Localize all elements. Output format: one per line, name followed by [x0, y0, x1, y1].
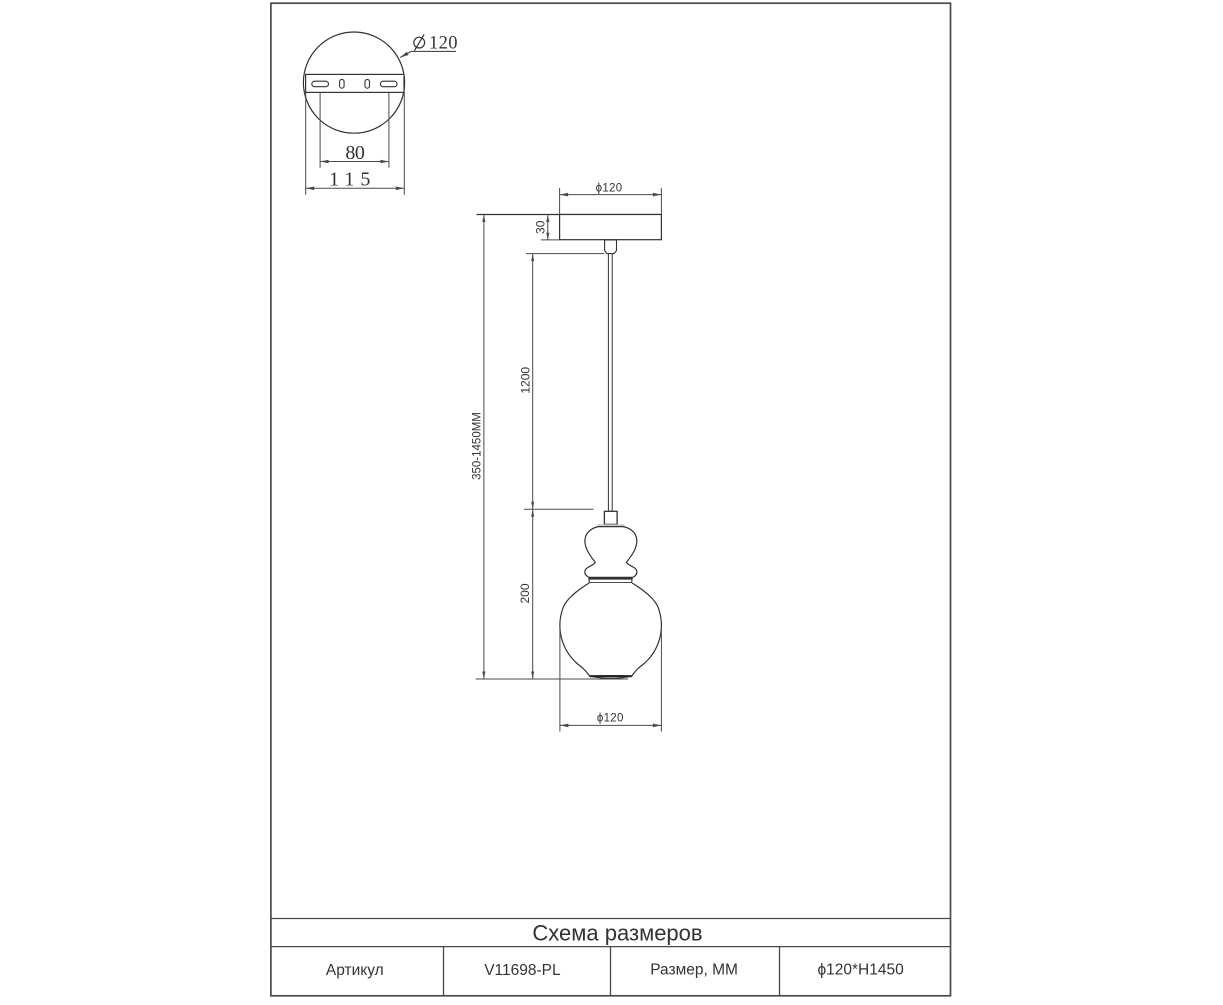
- svg-text:Схема размеров: Схема размеров: [532, 920, 702, 945]
- svg-text:Артикул: Артикул: [326, 962, 384, 979]
- svg-text:ϕ120: ϕ120: [596, 182, 623, 194]
- svg-text:Размер, ММ: Размер, ММ: [650, 961, 738, 978]
- svg-text:120: 120: [429, 33, 458, 53]
- svg-text:1200: 1200: [519, 367, 533, 394]
- svg-text:80: 80: [345, 142, 365, 164]
- svg-text:200: 200: [518, 583, 532, 603]
- svg-text:ϕ120: ϕ120: [597, 712, 624, 724]
- svg-text:ϕ120*H1450: ϕ120*H1450: [817, 962, 904, 979]
- svg-text:115: 115: [329, 168, 376, 190]
- svg-text:30: 30: [533, 220, 547, 234]
- svg-text:V11698-PL: V11698-PL: [484, 962, 561, 979]
- svg-text:350-1450MM: 350-1450MM: [471, 412, 483, 480]
